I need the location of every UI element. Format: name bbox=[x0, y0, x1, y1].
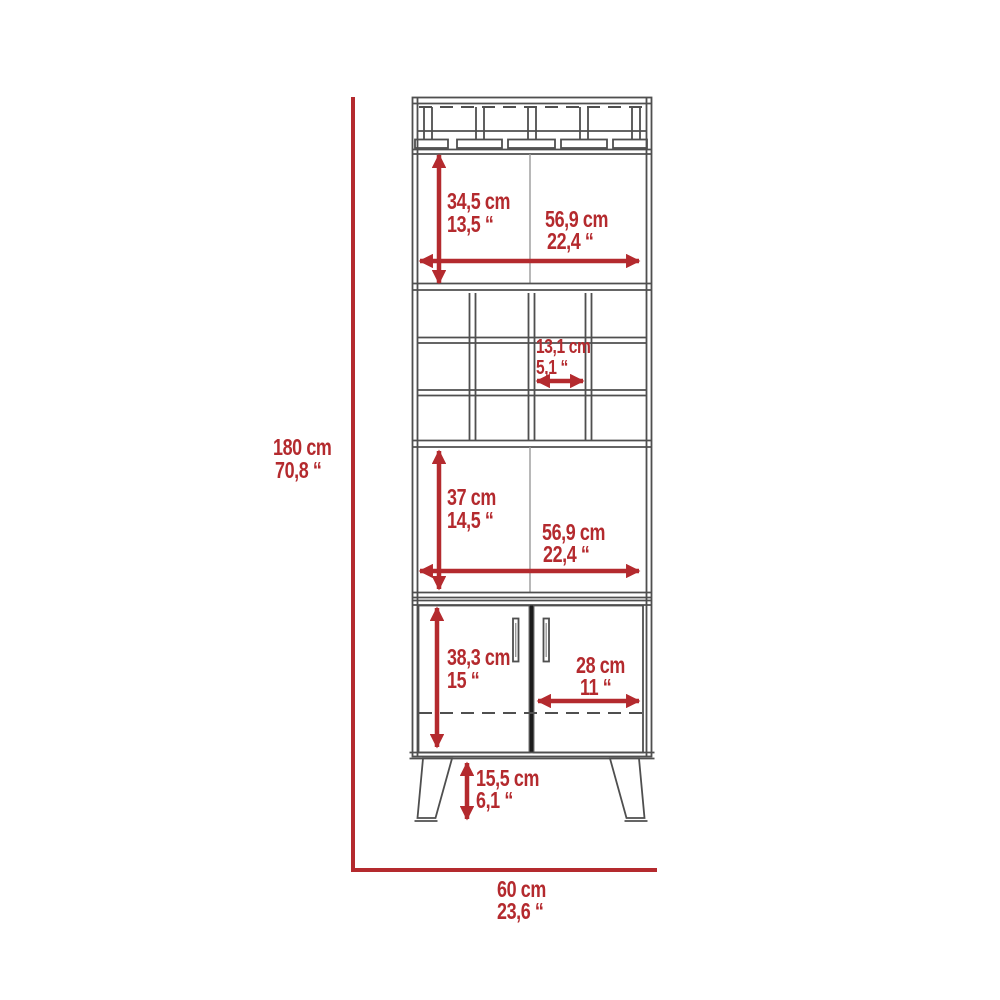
label-door-width-in: 11 “ bbox=[580, 675, 611, 701]
cabinet-diagram-svg: 34,5 cm 13,5 “ 56,9 cm 22,4 “ 13,1 cm 5,… bbox=[0, 0, 1000, 1000]
svg-text:5,1 “: 5,1 “ bbox=[536, 356, 568, 378]
svg-text:22,4 “: 22,4 “ bbox=[543, 542, 589, 568]
svg-text:23,6 “: 23,6 “ bbox=[497, 899, 543, 925]
wine-rack bbox=[413, 293, 652, 447]
svg-text:22,4 “: 22,4 “ bbox=[547, 229, 593, 255]
label-overall-height-in: 70,8 “ bbox=[275, 458, 321, 484]
label-mid-shelf-width-in: 22,4 “ bbox=[543, 542, 589, 568]
svg-text:15 “: 15 “ bbox=[447, 668, 479, 694]
glass-stems bbox=[424, 107, 640, 140]
stemware-rails bbox=[415, 140, 647, 149]
svg-text:14,5 “: 14,5 “ bbox=[447, 508, 493, 534]
label-top-shelf-width-in: 22,4 “ bbox=[547, 229, 593, 255]
svg-text:180 cm: 180 cm bbox=[273, 435, 332, 461]
stemware-rack bbox=[413, 107, 652, 154]
label-mid-shelf-height-cm: 37 cm bbox=[447, 485, 496, 511]
left-leg bbox=[418, 759, 453, 819]
svg-text:34,5 cm: 34,5 cm bbox=[447, 189, 510, 215]
label-overall-height-cm: 180 cm bbox=[273, 435, 332, 461]
dimension-diagram: 34,5 cm 13,5 “ 56,9 cm 22,4 “ 13,1 cm 5,… bbox=[0, 0, 1000, 1000]
label-wine-cubby-width-cm: 13,1 cm bbox=[536, 335, 590, 357]
label-cabinet-height-in: 15 “ bbox=[447, 668, 479, 694]
svg-text:13,5 “: 13,5 “ bbox=[447, 212, 493, 238]
label-overall-width-in: 23,6 “ bbox=[497, 899, 543, 925]
label-cabinet-height-cm: 38,3 cm bbox=[447, 645, 510, 671]
svg-text:38,3 cm: 38,3 cm bbox=[447, 645, 510, 671]
svg-text:13,1 cm: 13,1 cm bbox=[536, 335, 590, 357]
label-wine-cubby-width-in: 5,1 “ bbox=[536, 356, 568, 378]
label-mid-shelf-height-in: 14,5 “ bbox=[447, 508, 493, 534]
label-legs-height-in: 6,1 “ bbox=[476, 788, 513, 814]
label-top-shelf-height-in: 13,5 “ bbox=[447, 212, 493, 238]
right-leg bbox=[610, 759, 645, 819]
svg-text:37 cm: 37 cm bbox=[447, 485, 496, 511]
svg-text:11 “: 11 “ bbox=[580, 675, 611, 701]
svg-text:70,8 “: 70,8 “ bbox=[275, 458, 321, 484]
svg-text:6,1 “: 6,1 “ bbox=[476, 788, 513, 814]
label-top-shelf-height-cm: 34,5 cm bbox=[447, 189, 510, 215]
